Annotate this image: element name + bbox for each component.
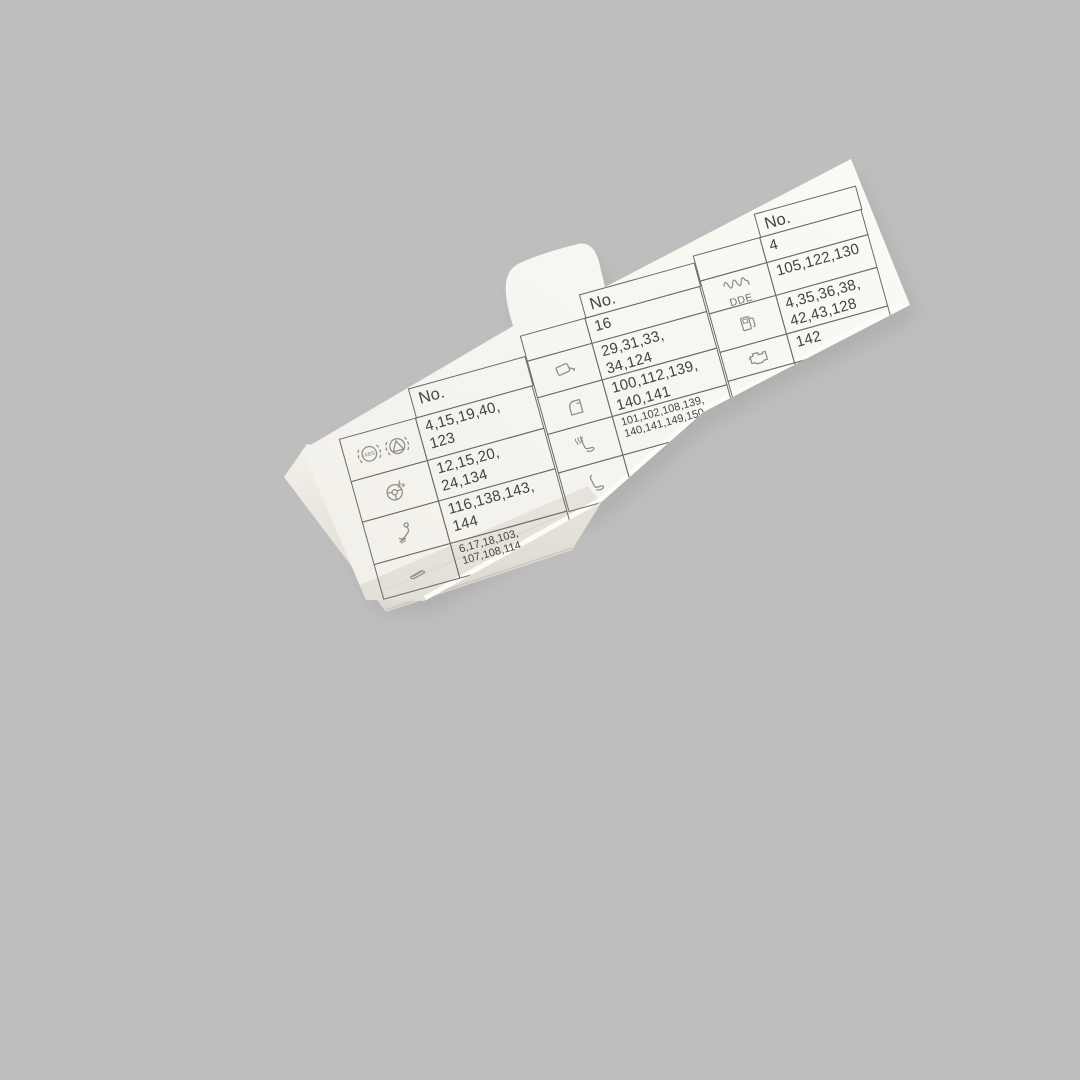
fuse-card-photo: ABS [0,0,1080,1080]
door-icon [558,390,591,423]
abs-icon [353,437,386,470]
mirror-icon [548,354,581,387]
fuel-pump-icon [731,307,764,340]
traction-control-icon [381,429,414,462]
heated-seat-icon [569,428,602,461]
seat-icon [579,467,612,500]
towbar-icon [390,516,423,549]
photo-backdrop: ABS [0,0,1080,1080]
steering-wheel-icon [378,475,411,508]
cigarette-lighter-icon [400,555,433,588]
